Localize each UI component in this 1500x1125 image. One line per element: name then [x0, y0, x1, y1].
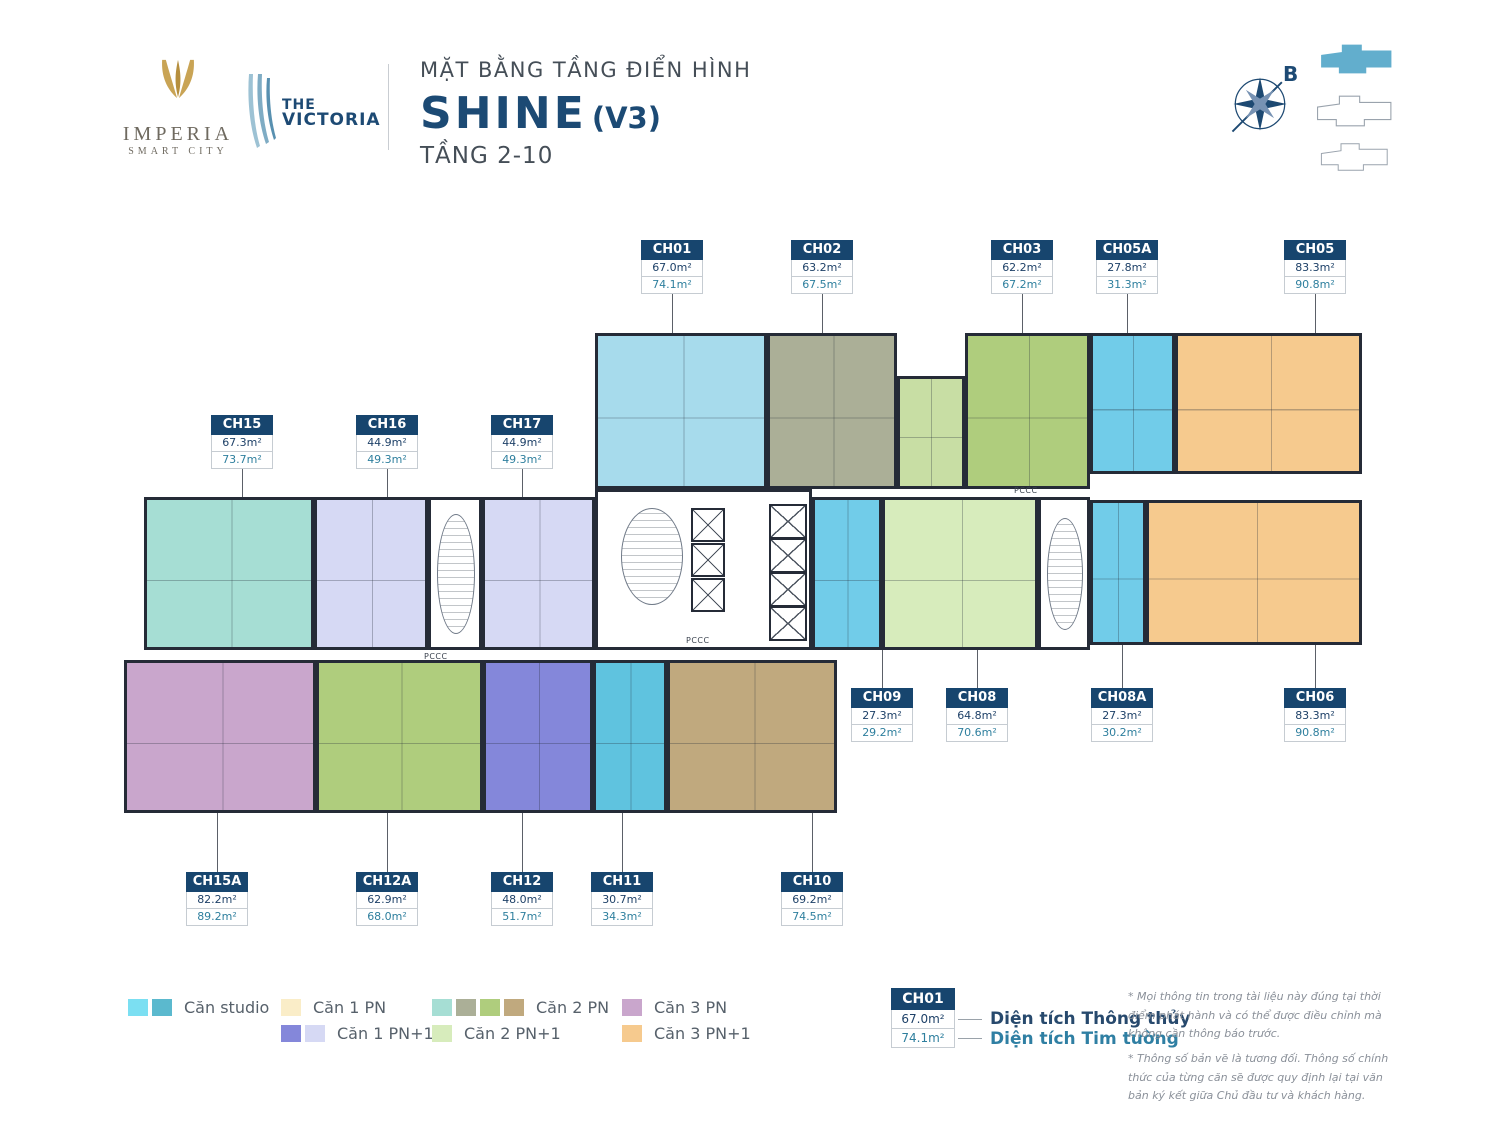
leader-line: [242, 469, 243, 497]
stair-core-west: [428, 497, 482, 650]
unit-ch09: [812, 497, 882, 650]
unit-net-area: 62.2m²: [991, 260, 1053, 277]
legend-item-3pn: Căn 3 PN: [622, 998, 727, 1017]
legend-swatch: [305, 1025, 325, 1042]
elevator-icon: [691, 578, 725, 612]
unit-net-area: 27.3m²: [851, 708, 913, 725]
legend-item-3pn1: Căn 3 PN+1: [622, 1024, 751, 1043]
unit-id: CH05A: [1096, 240, 1158, 260]
unit-ch15: [144, 497, 314, 650]
unit-gross-area: 67.2m²: [991, 277, 1053, 294]
legend-label: Căn 3 PN: [654, 998, 727, 1017]
unit-ch03-annex: [897, 376, 965, 489]
unit-ch03: [965, 333, 1090, 489]
unit-net-area: 62.9m²: [356, 892, 418, 909]
leader-line: [977, 650, 978, 688]
central-core: PCCC: [595, 489, 812, 650]
unit-net-area: 67.0m²: [891, 1010, 955, 1029]
legend-label: Căn 2 PN: [536, 998, 609, 1017]
unit-net-area: 44.9m²: [356, 435, 418, 452]
unit-gross-area: 67.5m²: [791, 277, 853, 294]
keyplan-building-highlight: [1320, 40, 1394, 78]
unit-callout-ch11: CH11 30.7m² 34.3m²: [591, 872, 653, 926]
legend-label: Căn 2 PN+1: [464, 1024, 561, 1043]
unit-id: CH17: [491, 415, 553, 435]
unit-net-area: 67.0m²: [641, 260, 703, 277]
unit-callout-ch12: CH12 48.0m² 51.7m²: [491, 872, 553, 926]
unit-ch02: [767, 333, 897, 489]
legend-label: Căn 3 PN+1: [654, 1024, 751, 1043]
legend-swatch: [622, 1025, 642, 1042]
legend-item-2pn: Căn 2 PN: [432, 998, 609, 1017]
unit-id: CH06: [1284, 688, 1346, 708]
unit-id: CH12: [491, 872, 553, 892]
unit-ch05: [1175, 333, 1362, 474]
unit-ch08: [882, 497, 1038, 650]
title-block: MẶT BẰNG TẦNG ĐIỂN HÌNH SHINE (V3) TẦNG …: [420, 58, 751, 169]
unit-ch17: [482, 497, 595, 650]
unit-net-area: 27.3m²: [1091, 708, 1153, 725]
legend-swatch: [281, 999, 301, 1016]
unit-callout-ch15a: CH15A 82.2m² 89.2m²: [186, 872, 248, 926]
unit-callout-ch08: CH08 64.8m² 70.6m²: [946, 688, 1008, 742]
unit-ch15a: [124, 660, 316, 813]
leader-line: [822, 294, 823, 333]
legend-item-studio: Căn studio: [128, 998, 269, 1017]
leader-line: [882, 650, 883, 688]
keyplan-building-3: [1320, 138, 1390, 176]
unit-id: CH08: [946, 688, 1008, 708]
elevator-icon: [691, 508, 725, 542]
unit-callout-ch01: CH01 67.0m² 74.1m²: [641, 240, 703, 294]
unit-id: CH01: [891, 988, 955, 1010]
unit-gross-area: 90.8m²: [1284, 277, 1346, 294]
leader-line: [1022, 294, 1023, 333]
unit-gross-area: 51.7m²: [491, 909, 553, 926]
unit-ch10: [667, 660, 837, 813]
elevator-icon: [769, 606, 807, 641]
legend-swatch: [480, 999, 500, 1016]
elevator-icon: [769, 572, 807, 607]
leader-line: [1122, 645, 1123, 688]
legend-swatch: [622, 999, 642, 1016]
legend-swatch: [281, 1025, 301, 1042]
unit-gross-area: 74.1m²: [641, 277, 703, 294]
unit-net-area: 44.9m²: [491, 435, 553, 452]
legend-swatch: [152, 999, 172, 1016]
unit-gross-area: 70.6m²: [946, 725, 1008, 742]
imperia-sub-wordmark: SMART CITY: [118, 146, 238, 157]
sample-unit-callout: CH01 67.0m² 74.1m²: [891, 988, 955, 1048]
unit-callout-ch08a: CH08A 27.3m² 30.2m²: [1091, 688, 1153, 742]
unit-ch08a: [1090, 500, 1146, 645]
unit-ch01: [595, 333, 767, 489]
keyplan-building-2: [1316, 90, 1394, 132]
legend-item-1pn: Căn 1 PN: [281, 998, 386, 1017]
elevator-icon: [691, 543, 725, 577]
unit-gross-area: 49.3m²: [356, 452, 418, 469]
unit-id: CH08A: [1091, 688, 1153, 708]
victoria-name-text: VICTORIA: [282, 112, 381, 130]
leader-line: [387, 469, 388, 497]
floorplan-brochure-page: IMPERIA SMART CITY THE VICTORIA MẶT BẰNG…: [0, 0, 1500, 1125]
elevator-icon: [769, 504, 807, 539]
unit-callout-ch17: CH17 44.9m² 49.3m²: [491, 415, 553, 469]
disclaimer-note-1: * Mọi thông tin trong tài liệu này đúng …: [1128, 988, 1400, 1044]
unit-id: CH15A: [186, 872, 248, 892]
unit-net-area: 64.8m²: [946, 708, 1008, 725]
stair-icon: [621, 508, 683, 605]
sample-connector-line: [958, 1038, 982, 1039]
leader-line: [622, 813, 623, 872]
unit-net-area: 48.0m²: [491, 892, 553, 909]
legend-swatch: [456, 999, 476, 1016]
pccc-label: PCCC: [1014, 486, 1038, 495]
sample-connector-line: [958, 1019, 982, 1020]
leader-line: [672, 294, 673, 333]
unit-gross-area: 49.3m²: [491, 452, 553, 469]
unit-net-area: 27.8m²: [1096, 260, 1158, 277]
unit-net-area: 83.3m²: [1284, 260, 1346, 277]
floor-range-label: TẦNG 2-10: [420, 143, 751, 169]
unit-gross-area: 29.2m²: [851, 725, 913, 742]
leader-line: [522, 469, 523, 497]
unit-gross-area: 68.0m²: [356, 909, 418, 926]
leader-line: [1315, 645, 1316, 688]
imperia-tulip-icon: [150, 55, 206, 117]
leader-line: [387, 813, 388, 872]
disclaimer-notes: * Mọi thông tin trong tài liệu này đúng …: [1128, 988, 1400, 1112]
unit-callout-ch06: CH06 83.3m² 90.8m²: [1284, 688, 1346, 742]
unit-gross-area: 73.7m²: [211, 452, 273, 469]
leader-line: [217, 813, 218, 872]
imperia-logo: IMPERIA SMART CITY: [118, 55, 238, 157]
stair-icon: [437, 514, 475, 634]
unit-gross-area: 74.5m²: [781, 909, 843, 926]
unit-net-area: 67.3m²: [211, 435, 273, 452]
unit-callout-ch09: CH09 27.3m² 29.2m²: [851, 688, 913, 742]
elevator-icon: [769, 538, 807, 573]
unit-callout-ch02: CH02 63.2m² 67.5m²: [791, 240, 853, 294]
leader-line: [522, 813, 523, 872]
legend-swatch: [128, 999, 148, 1016]
legend-swatch: [504, 999, 524, 1016]
unit-net-area: 82.2m²: [186, 892, 248, 909]
compass-north-label: B: [1283, 62, 1298, 86]
unit-callout-ch12a: CH12A 62.9m² 68.0m²: [356, 872, 418, 926]
disclaimer-note-2: * Thông số bản vẽ là tương đối. Thông số…: [1128, 1050, 1400, 1106]
unit-callout-ch10: CH10 69.2m² 74.5m²: [781, 872, 843, 926]
unit-id: CH10: [781, 872, 843, 892]
unit-ch12: [483, 660, 593, 813]
unit-gross-area: 30.2m²: [1091, 725, 1153, 742]
pccc-label: PCCC: [686, 636, 710, 645]
unit-id: CH03: [991, 240, 1053, 260]
unit-ch06: [1146, 500, 1362, 645]
legend-item-1pn1: Căn 1 PN+1: [281, 1024, 434, 1043]
unit-id: CH09: [851, 688, 913, 708]
legend-label: Căn studio: [184, 998, 269, 1017]
legend-item-2pn1: Căn 2 PN+1: [432, 1024, 561, 1043]
unit-gross-area: 89.2m²: [186, 909, 248, 926]
imperia-wordmark: IMPERIA: [118, 123, 238, 146]
unit-callout-ch15: CH15 67.3m² 73.7m²: [211, 415, 273, 469]
unit-id: CH05: [1284, 240, 1346, 260]
unit-gross-area: 90.8m²: [1284, 725, 1346, 742]
unit-net-area: 69.2m²: [781, 892, 843, 909]
leader-line: [1127, 294, 1128, 333]
legend-label: Căn 1 PN: [313, 998, 386, 1017]
unit-ch16: [314, 497, 428, 650]
unit-callout-ch03: CH03 62.2m² 67.2m²: [991, 240, 1053, 294]
unit-id: CH01: [641, 240, 703, 260]
unit-gross-area: 34.3m²: [591, 909, 653, 926]
victoria-bars-icon: [246, 72, 276, 156]
page-subtitle: MẶT BẰNG TẦNG ĐIỂN HÌNH: [420, 58, 751, 82]
unit-id: CH02: [791, 240, 853, 260]
leader-line: [812, 813, 813, 872]
unit-net-area: 83.3m²: [1284, 708, 1346, 725]
unit-callout-ch05: CH05 83.3m² 90.8m²: [1284, 240, 1346, 294]
legend-swatch: [432, 999, 452, 1016]
header-divider: [388, 64, 389, 150]
unit-gross-area: 31.3m²: [1096, 277, 1158, 294]
legend-swatch: [432, 1025, 452, 1042]
victoria-logo: THE VICTORIA: [246, 72, 381, 156]
unit-net-area: 30.7m²: [591, 892, 653, 909]
unit-callout-ch16: CH16 44.9m² 49.3m²: [356, 415, 418, 469]
unit-net-area: 63.2m²: [791, 260, 853, 277]
unit-id: CH11: [591, 872, 653, 892]
page-title: SHINE: [420, 88, 587, 139]
legend-label: Căn 1 PN+1: [337, 1024, 434, 1043]
stair-core-east: [1038, 497, 1090, 650]
unit-ch11: [593, 660, 667, 813]
unit-id: CH16: [356, 415, 418, 435]
stair-icon: [1047, 518, 1083, 630]
unit-id: CH15: [211, 415, 273, 435]
unit-ch12a: [316, 660, 483, 813]
unit-callout-ch05a: CH05A 27.8m² 31.3m²: [1096, 240, 1158, 294]
leader-line: [1315, 294, 1316, 333]
unit-id: CH12A: [356, 872, 418, 892]
unit-gross-area: 74.1m²: [891, 1029, 955, 1048]
page-title-suffix: (V3): [592, 101, 661, 135]
unit-ch05a: [1090, 333, 1175, 474]
